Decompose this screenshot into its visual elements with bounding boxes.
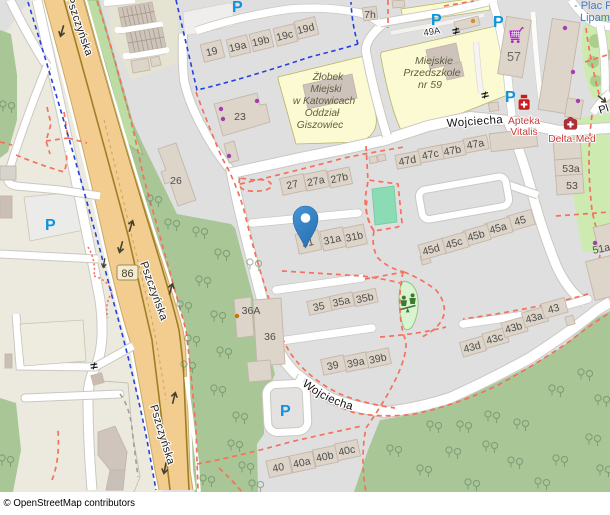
svg-text:7h: 7h	[364, 9, 376, 21]
svg-text:36A: 36A	[242, 305, 261, 317]
svg-text:nr 59: nr 59	[418, 79, 442, 91]
svg-text:53a: 53a	[562, 163, 580, 175]
svg-text:Miejskie: Miejskie	[415, 55, 453, 67]
svg-text:P: P	[280, 403, 291, 420]
svg-text:© OpenStreetMap contributors: © OpenStreetMap contributors	[4, 498, 136, 509]
svg-text:23: 23	[234, 111, 246, 123]
svg-text:57: 57	[507, 50, 521, 64]
svg-text:Delta-Med: Delta-Med	[548, 134, 596, 145]
svg-text:Żłobek: Żłobek	[312, 71, 344, 83]
svg-text:P: P	[45, 217, 56, 234]
svg-text:- Plac Po: - Plac Po	[574, 0, 610, 12]
svg-text:26: 26	[170, 175, 182, 187]
svg-text:Apteka: Apteka	[508, 116, 540, 127]
svg-text:86: 86	[121, 268, 133, 280]
svg-text:Przedszkole: Przedszkole	[403, 67, 460, 79]
svg-text:Miejski: Miejski	[310, 84, 342, 95]
svg-text:Vitalis: Vitalis	[510, 127, 537, 138]
svg-text:P: P	[493, 14, 504, 31]
svg-text:Lipami: Lipami	[580, 12, 610, 24]
svg-text:P: P	[505, 89, 516, 106]
svg-text:P: P	[232, 0, 243, 16]
svg-text:w Katowicach: w Katowicach	[293, 96, 356, 107]
svg-text:Oddział: Oddział	[305, 108, 340, 119]
svg-text:Giszowiec: Giszowiec	[297, 120, 343, 131]
svg-text:53: 53	[566, 180, 578, 192]
svg-text:36: 36	[264, 331, 276, 343]
